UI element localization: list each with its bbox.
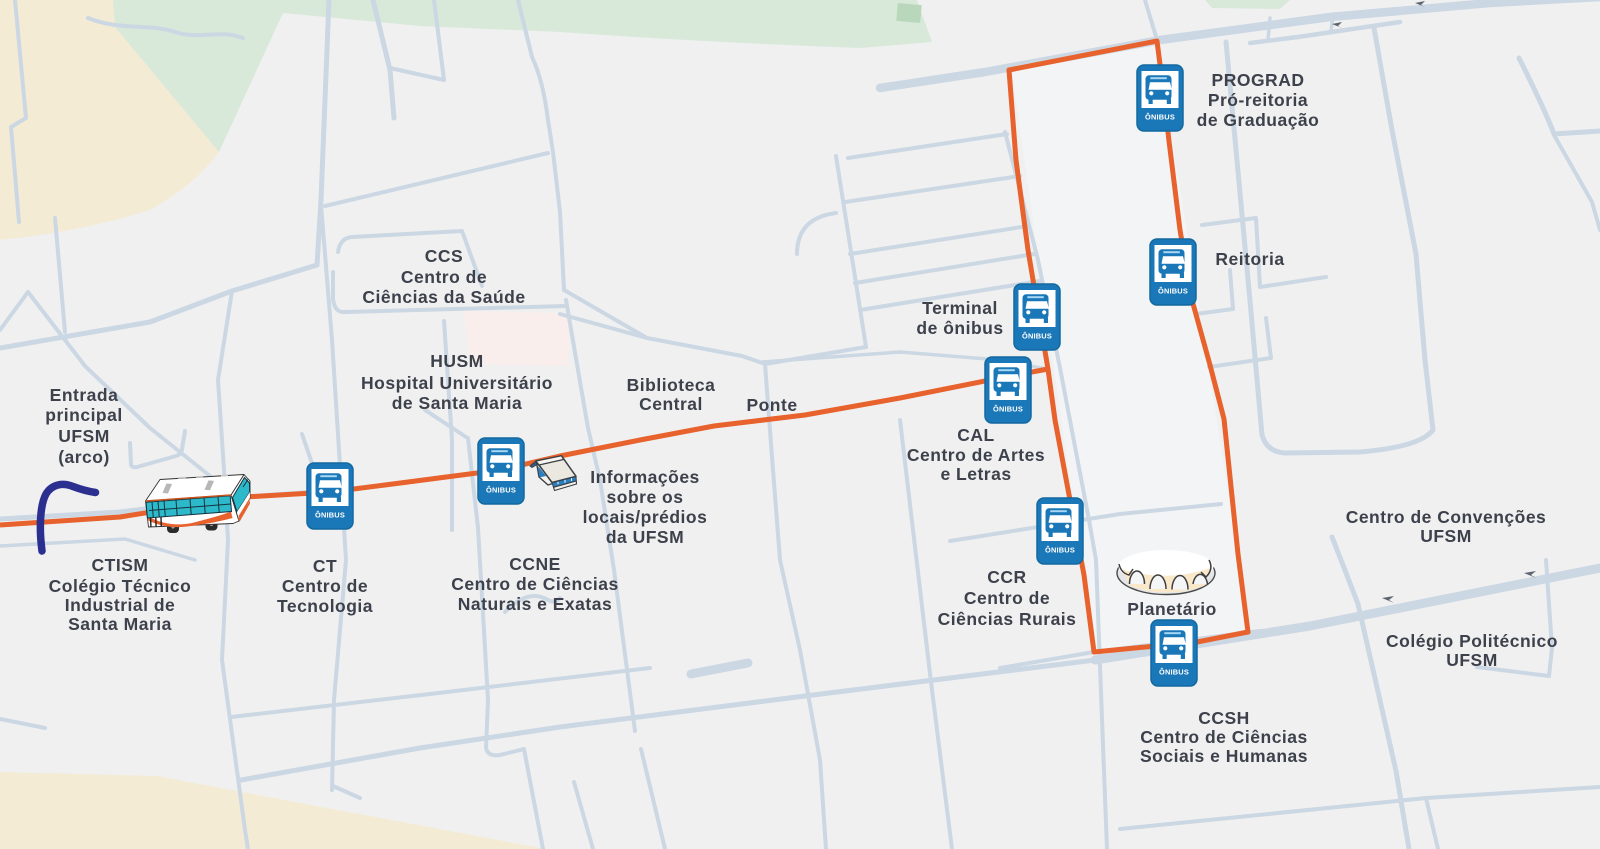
svg-text:HUSM: HUSM bbox=[430, 351, 484, 371]
svg-text:CTISM: CTISM bbox=[92, 555, 149, 575]
svg-text:Informações: Informações bbox=[590, 467, 700, 487]
svg-text:CCNE: CCNE bbox=[509, 554, 561, 574]
svg-text:UFSM: UFSM bbox=[58, 426, 110, 446]
svg-text:Colégio Técnico: Colégio Técnico bbox=[49, 576, 192, 596]
svg-text:CT: CT bbox=[313, 556, 337, 576]
svg-text:locais/prédios: locais/prédios bbox=[583, 507, 708, 527]
svg-text:Planetário: Planetário bbox=[1127, 599, 1217, 619]
svg-text:de Santa Maria: de Santa Maria bbox=[392, 393, 523, 413]
svg-text:CCS: CCS bbox=[425, 246, 463, 266]
svg-text:CAL: CAL bbox=[957, 425, 994, 445]
svg-text:CCSH: CCSH bbox=[1198, 708, 1250, 728]
svg-text:de Graduação: de Graduação bbox=[1197, 110, 1320, 130]
svg-text:Centro de Artes: Centro de Artes bbox=[907, 445, 1045, 465]
svg-text:principal: principal bbox=[45, 405, 122, 425]
svg-text:Ciências da Saúde: Ciências da Saúde bbox=[362, 287, 525, 307]
svg-text:Centro de: Centro de bbox=[282, 576, 368, 596]
svg-text:Centro de Convenções: Centro de Convenções bbox=[1346, 507, 1547, 527]
svg-text:UFSM: UFSM bbox=[1446, 650, 1498, 670]
svg-text:Santa Maria: Santa Maria bbox=[68, 614, 172, 634]
svg-text:e Letras: e Letras bbox=[940, 464, 1011, 484]
svg-text:Pró-reitoria: Pró-reitoria bbox=[1208, 90, 1308, 110]
svg-text:Entrada: Entrada bbox=[50, 385, 119, 405]
svg-text:Industrial de: Industrial de bbox=[65, 595, 176, 615]
svg-text:Terminal: Terminal bbox=[922, 298, 998, 318]
svg-text:PROGRAD: PROGRAD bbox=[1212, 70, 1305, 90]
svg-text:da UFSM: da UFSM bbox=[606, 527, 684, 547]
svg-text:Hospital Universitário: Hospital Universitário bbox=[361, 373, 553, 393]
svg-text:Reitoria: Reitoria bbox=[1215, 249, 1284, 269]
svg-text:CCR: CCR bbox=[987, 567, 1026, 587]
svg-text:sobre os: sobre os bbox=[607, 487, 684, 507]
svg-text:Tecnologia: Tecnologia bbox=[277, 596, 373, 616]
svg-text:Ponte: Ponte bbox=[746, 395, 797, 415]
svg-text:Biblioteca: Biblioteca bbox=[627, 375, 716, 395]
svg-text:UFSM: UFSM bbox=[1420, 526, 1472, 546]
svg-text:Ciências Rurais: Ciências Rurais bbox=[938, 609, 1077, 629]
svg-text:Centro de: Centro de bbox=[401, 267, 487, 287]
svg-text:(arco): (arco) bbox=[58, 447, 110, 467]
svg-text:Central: Central bbox=[639, 394, 703, 414]
svg-text:Centro de Ciências: Centro de Ciências bbox=[1140, 727, 1308, 747]
svg-text:de ônibus: de ônibus bbox=[916, 318, 1003, 338]
svg-text:Sociais e Humanas: Sociais e Humanas bbox=[1140, 746, 1308, 766]
svg-text:Colégio Politécnico: Colégio Politécnico bbox=[1386, 631, 1558, 651]
svg-text:Centro de Ciências: Centro de Ciências bbox=[451, 574, 619, 594]
svg-text:Centro de: Centro de bbox=[964, 588, 1050, 608]
svg-text:Naturais e Exatas: Naturais e Exatas bbox=[458, 594, 612, 614]
